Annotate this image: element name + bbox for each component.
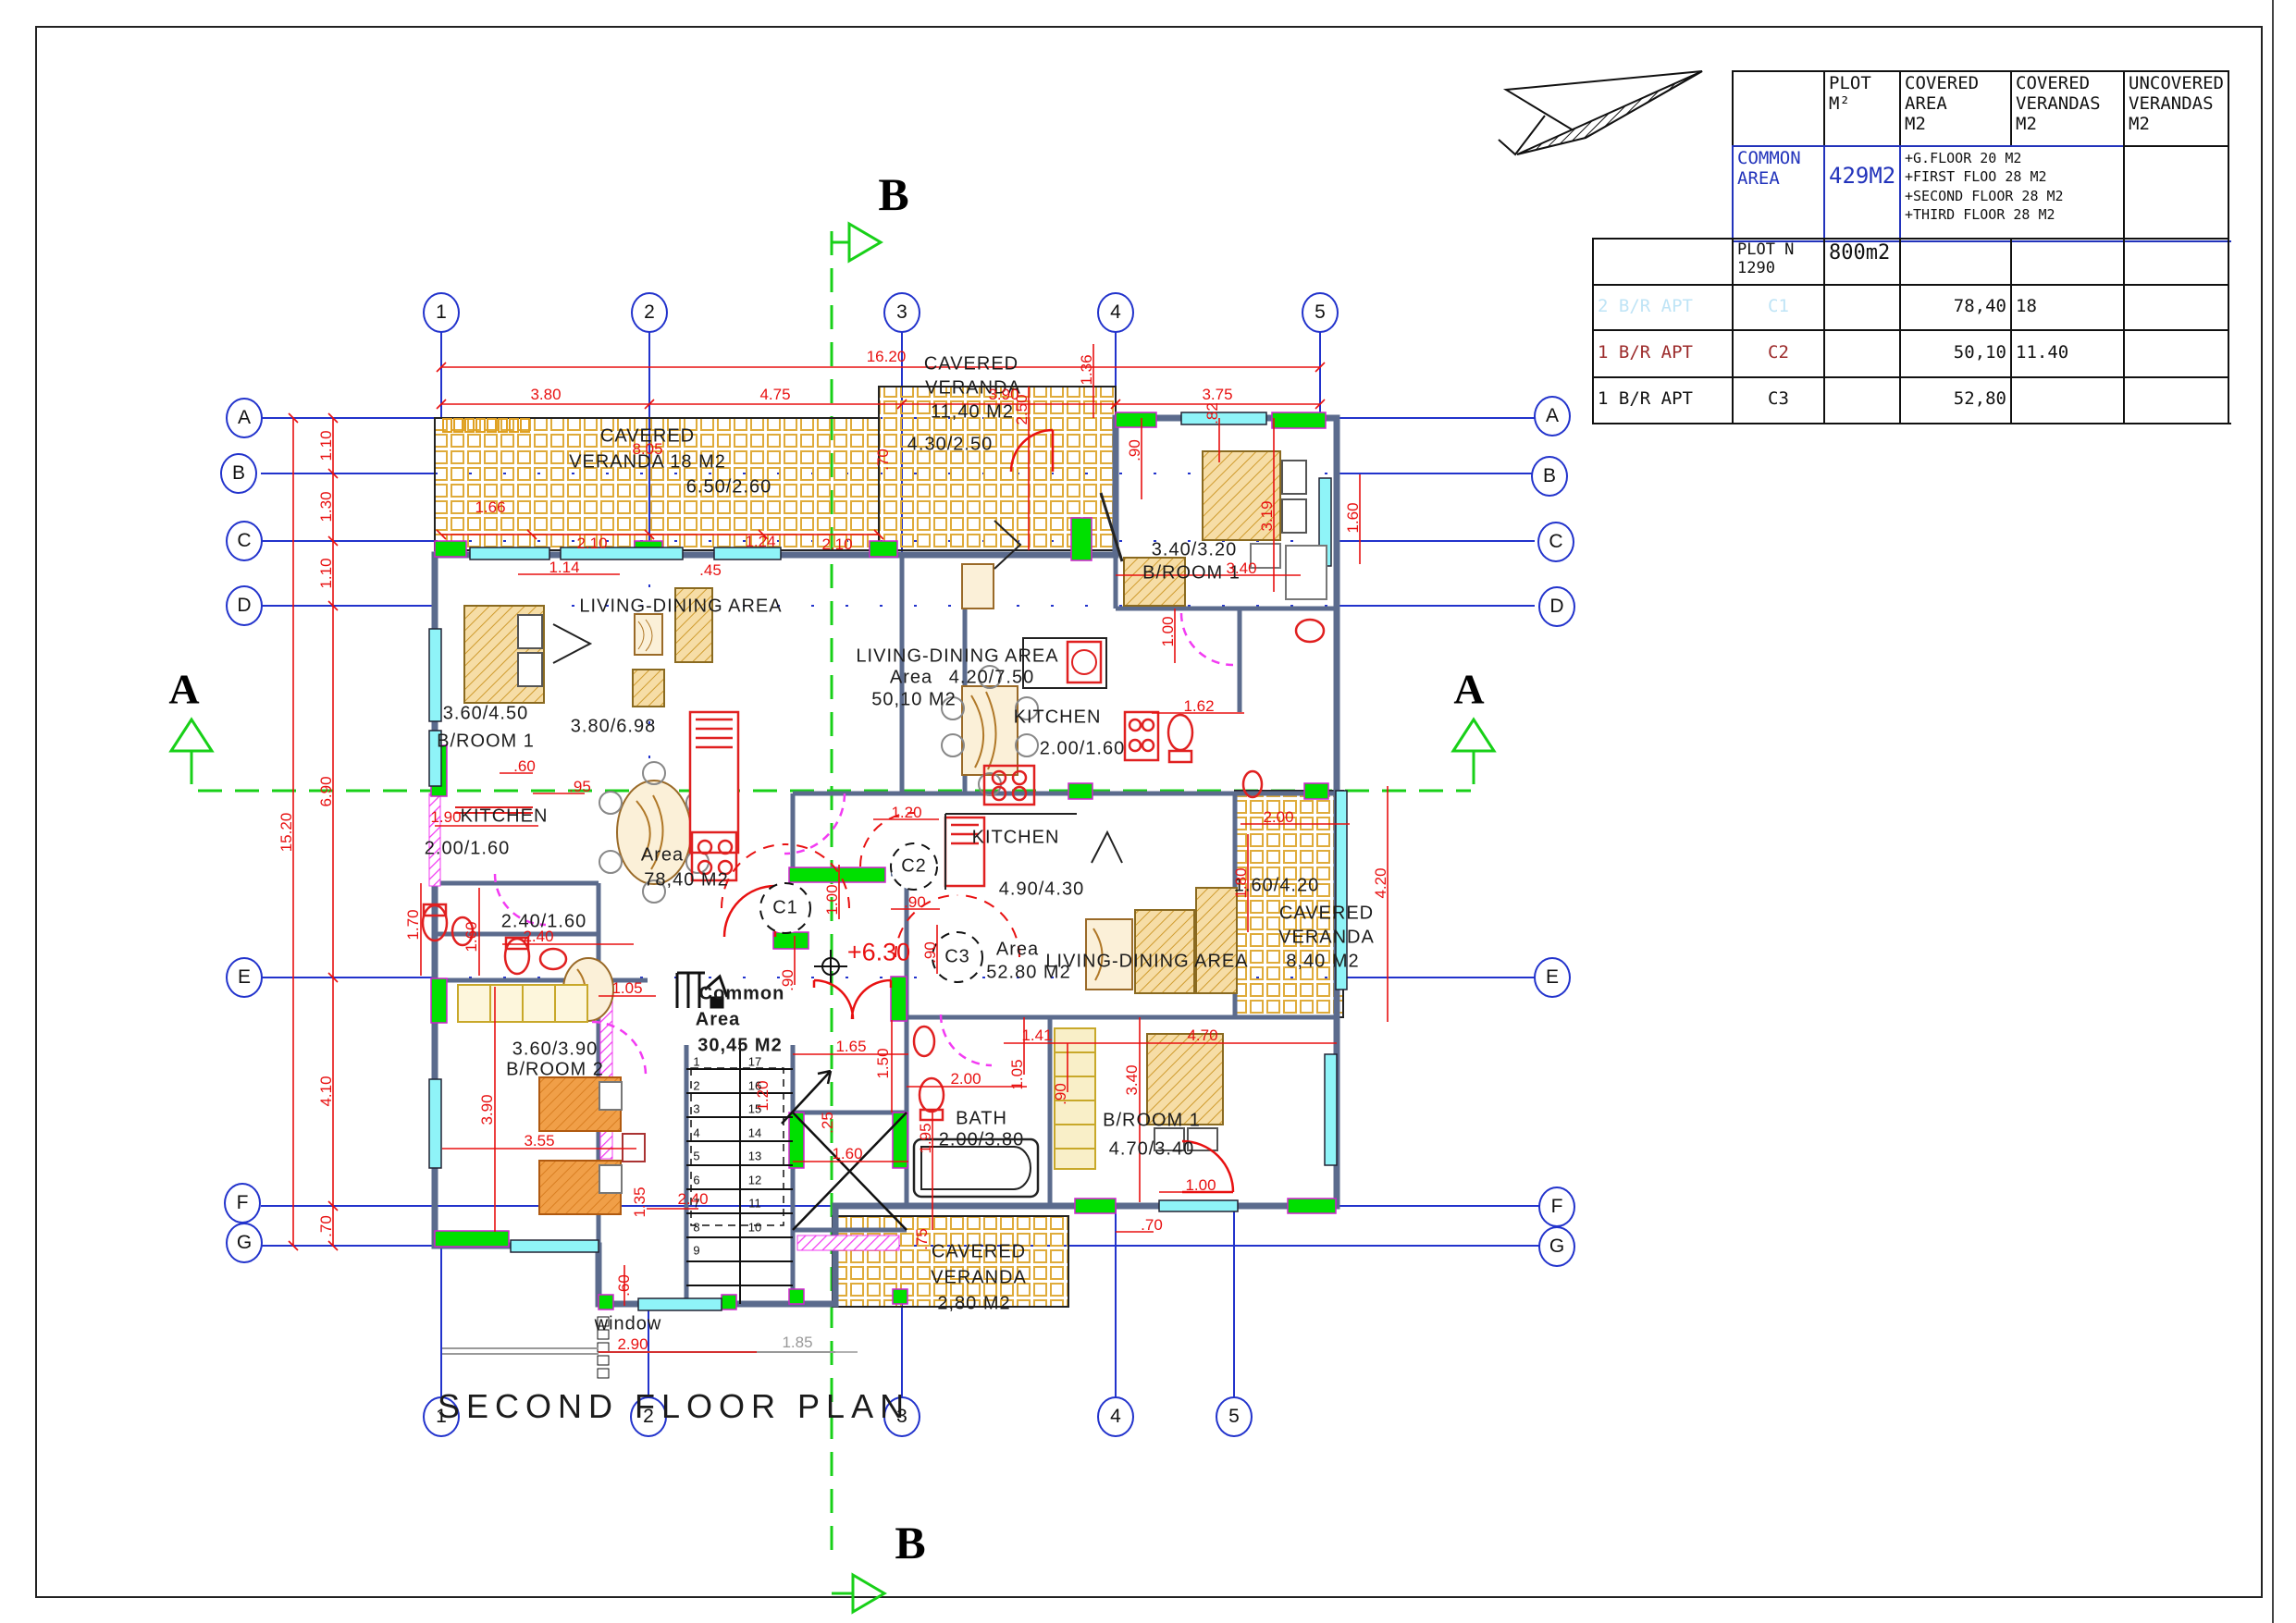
dimension-label: .90 (779, 969, 797, 991)
room-label: VERANDA (1278, 928, 1375, 949)
dimension-label: 1.00 (1185, 1176, 1216, 1195)
room-label: 11,40 M2 (931, 402, 1014, 424)
grid-bubble-right-E: E (1534, 957, 1571, 998)
room-label: Area (641, 845, 684, 867)
room-label: BATH (956, 1109, 1007, 1130)
room-label: KITCHEN (1014, 707, 1102, 729)
dimension-label: 4.75 (759, 386, 790, 404)
grid-bubble-top-3: 3 (883, 292, 920, 333)
apt-c3-verandas (2010, 376, 2123, 423)
apt-c1-covered: 78,40 (1899, 284, 2010, 329)
grid-bubble-top-4: 4 (1097, 292, 1134, 333)
dimension-label: 1.66 (475, 498, 505, 517)
grid-bubble-left-B: B (220, 453, 257, 494)
table-row-plot: PLOT N 1290 800m2 (1592, 238, 2231, 284)
grid-bubble-left-G: G (226, 1223, 263, 1263)
dimension-label: .25 (819, 1112, 837, 1134)
common-area-plot: 429M2 (1823, 145, 1899, 240)
stair-number: 11 (748, 1197, 761, 1211)
dimension-label: 1.41 (1021, 1027, 1052, 1045)
stair-number: 2 (693, 1078, 699, 1092)
dimension-label: 3.19 (1258, 500, 1277, 531)
room-label: 2.00/3.80 (939, 1130, 1024, 1151)
common-area-uncovered (2123, 145, 2229, 240)
room-label: 2.00/1.60 (1040, 739, 1125, 760)
apt-c2-verandas: 11.40 (2010, 329, 2123, 376)
grid-bubble-left-D: D (226, 585, 263, 626)
stair-number: 12 (748, 1173, 761, 1187)
stair-number: 6 (693, 1173, 699, 1187)
dimension-label: 3.55 (524, 1132, 554, 1150)
common-area-label: COMMON AREA (1732, 145, 1823, 240)
drawing-title: SECOND FLOOR PLAN (438, 1387, 910, 1426)
room-label: VERANDA (931, 1268, 1027, 1289)
dimension-label: 6.90 (317, 776, 336, 806)
dimension-label: .95 (569, 778, 591, 796)
plot-number: PLOT N 1290 (1732, 238, 1823, 284)
room-label: 50,10 M2 (871, 690, 956, 711)
dimension-label: 2.90 (617, 1335, 648, 1354)
section-marker: B (878, 167, 908, 221)
grid-bubble-right-F: F (1538, 1187, 1575, 1227)
stair-number: 5 (693, 1150, 699, 1163)
room-label: CAVERED (1279, 904, 1374, 925)
dimension-label: 4.20 (1372, 867, 1390, 898)
grid-bubble-left-C: C (226, 521, 263, 561)
room-label: B/ROOM 1 (1103, 1111, 1201, 1132)
dimension-label: 3.90 (478, 1094, 497, 1125)
dimension-label: 1.60 (1344, 502, 1363, 533)
stair-number: 8 (693, 1220, 699, 1234)
stair-number: 9 (693, 1244, 699, 1258)
dimension-label: 16.20 (867, 348, 907, 366)
dimension-label: 1.60 (463, 921, 481, 952)
table-header-blank (1732, 70, 1823, 145)
dimension-label: 2.50 (1013, 394, 1031, 424)
dimension-label: 3.75 (1202, 386, 1232, 404)
dimension-label: 1.05 (1008, 1059, 1027, 1089)
grid-bubble-left-F: F (224, 1183, 261, 1223)
table-row-c3: 1 B/R APT C3 52,80 (1592, 376, 2231, 424)
apt-c2-covered: 50,10 (1899, 329, 2010, 376)
dimension-label: 2.10 (576, 535, 607, 553)
room-label: 4.30/2.50 (907, 435, 993, 456)
dimension-label: .60 (615, 1274, 634, 1297)
dimension-label: 4.10 (317, 1076, 336, 1106)
dimension-label: 1.10 (317, 430, 336, 461)
stair-number: 1 (693, 1055, 699, 1069)
dimension-label: 1.20 (891, 804, 921, 822)
dimension-label: .45 (699, 561, 722, 580)
apt-c1-label: 2 B/R APT (1592, 284, 1732, 329)
grid-bubble-left-E: E (226, 957, 263, 998)
stair-number: 14 (748, 1125, 761, 1139)
stair-number: 7 (693, 1197, 699, 1211)
stair-number: 10 (748, 1220, 761, 1234)
stair-number: 4 (693, 1125, 699, 1139)
dimension-label: .60 (513, 757, 536, 776)
room-label: LIVING-DINING AREA (579, 596, 782, 618)
dimension-label: 2.00 (950, 1070, 981, 1088)
grid-bubble-right-G: G (1538, 1226, 1575, 1267)
dimension-label: 4.70 (1187, 1027, 1217, 1045)
dimension-label: .82 (1204, 402, 1222, 424)
room-label: CAVERED (932, 1242, 1026, 1263)
room-label: 30,45 M2 (697, 1036, 782, 1057)
dimension-label: 1.95 (917, 1123, 935, 1153)
room-label: Area (890, 668, 932, 689)
dimension-label: 1.70 (404, 909, 423, 940)
grid-bubble-top-5: 5 (1302, 292, 1339, 333)
room-label: B/ROOM 1 (437, 732, 535, 753)
dimension-label: 1.65 (835, 1038, 866, 1056)
apt-c2-label: 1 B/R APT (1592, 329, 1732, 376)
room-label: 3.80/6.98 (571, 717, 656, 738)
grid-bubble-bottom-4: 4 (1097, 1396, 1134, 1437)
dimension-label: 3.40 (1226, 559, 1256, 578)
dimension-label: 1.60 (832, 1145, 862, 1163)
grid-bubble-top-1: 1 (423, 292, 460, 333)
grid-bubble-top-2: 2 (631, 292, 668, 333)
dimension-label: 15.20 (278, 813, 296, 853)
dimension-label: 3.40 (1123, 1064, 1142, 1095)
dimension-label: 1.10 (317, 558, 336, 588)
dimension-label: .70 (317, 1215, 336, 1237)
dimension-label: 1.35 (631, 1187, 649, 1217)
dimension-label: 1.50 (874, 1048, 893, 1078)
room-label: LIVING-DINING AREA (1045, 952, 1248, 973)
area-summary-table: PLOT M² COVERED AREA M2 COVERED VERANDAS… (1732, 70, 2231, 242)
dimension-label: 1.36 (1078, 354, 1096, 385)
table-header-covered-area: COVERED AREA M2 (1899, 70, 2010, 145)
stair-number: 3 (693, 1102, 699, 1116)
table-header-covered-verandas: COVERED VERANDAS M2 (2010, 70, 2123, 145)
dimension-label: 1.80 (1232, 867, 1251, 898)
room-label: 3.60/4.50 (443, 704, 528, 725)
dimension-label: 8.05 (632, 440, 662, 459)
grid-bubble-right-C: C (1537, 522, 1574, 562)
apartment-circle-label: C3 (944, 947, 970, 968)
dimension-label: 1.85 (782, 1334, 812, 1352)
room-label: 8,40 M2 (1286, 952, 1359, 973)
room-label: 3.40/3.20 (1152, 540, 1237, 561)
apartment-circle-label: C2 (901, 856, 927, 878)
grid-bubble-left-A: A (226, 398, 263, 438)
room-label: KITCHEN (461, 806, 549, 828)
dimension-label: 2.10 (821, 535, 852, 554)
room-label: 4.20/7.50 (949, 668, 1034, 689)
grid-bubble-right-B: B (1531, 456, 1568, 497)
room-label: 3.60/3.90 (512, 1039, 598, 1061)
dimension-label: .90 (1126, 439, 1144, 461)
room-label: 4.70/3.40 (1109, 1139, 1194, 1161)
stair-number: 15 (748, 1102, 761, 1116)
room-label: 78,40 M2 (644, 870, 728, 891)
apt-c1-verandas: 18 (2010, 284, 2123, 329)
apartment-circle-label: C1 (772, 898, 798, 919)
dimension-label: +6.30 (847, 939, 910, 967)
drawing-sheet: PLOT M² COVERED AREA M2 COVERED VERANDAS… (0, 0, 2296, 1623)
dimension-label: 1.24 (745, 533, 775, 551)
room-label: KITCHEN (972, 828, 1060, 849)
room-label: Common (699, 984, 785, 1005)
table-row-c2: 1 B/R APT C2 50,10 11.40 (1592, 329, 2231, 376)
table-header-plot: PLOT M² (1823, 70, 1899, 145)
table-header-uncovered-verandas: UNCOVERED VERANDAS M2 (2123, 70, 2229, 145)
dimension-label: .70 (874, 449, 893, 471)
dimension-label: 1.14 (549, 559, 579, 577)
table-row-c1: 2 B/R APT C1 78,40 18 (1592, 284, 2231, 329)
stair-number: 13 (748, 1150, 761, 1163)
dimension-label: 1.30 (317, 491, 336, 522)
room-label: 2.00/1.60 (425, 839, 510, 860)
dimension-label: 3.80 (530, 386, 561, 404)
apt-c2-code: C2 (1732, 329, 1823, 376)
common-area-floors: +G.FLOOR 20 M2 +FIRST FLOO 28 M2 +SECOND… (1899, 145, 2123, 240)
section-marker: A (168, 665, 199, 714)
dimension-label: .90 (904, 893, 926, 912)
room-label: Area (996, 940, 1039, 961)
grid-bubble-bottom-5: 5 (1216, 1396, 1253, 1437)
room-label: CAVERED (924, 354, 1018, 375)
room-label: B/ROOM 2 (506, 1060, 604, 1081)
grid-bubble-right-A: A (1534, 396, 1571, 436)
apt-c3-covered: 52,80 (1899, 376, 2010, 423)
apt-c3-code: C3 (1732, 376, 1823, 423)
room-label: 6.50/2.60 (686, 477, 772, 498)
paper-plane-logo (1487, 51, 1728, 171)
plot-size: 800m2 (1823, 238, 1899, 284)
stair-number: 17 (748, 1055, 761, 1069)
dimension-label: .75 (913, 1228, 932, 1250)
dimension-label: 1.00 (823, 884, 842, 915)
dimension-label: 2.00 (1263, 808, 1293, 827)
room-label: window (595, 1314, 662, 1335)
room-label: 4.90/4.30 (999, 879, 1084, 901)
stair-number: 16 (748, 1078, 761, 1092)
dimension-label: 1.00 (1159, 616, 1178, 646)
room-label: 2,80 M2 (937, 1294, 1010, 1315)
apartments-table: PLOT N 1290 800m2 2 B/R APT C1 78,40 18 … (1592, 238, 2231, 424)
dimension-label: .70 (1141, 1216, 1163, 1235)
apt-c3-label: 1 B/R APT (1592, 376, 1732, 423)
dimension-label: .90 (1052, 1083, 1070, 1105)
apt-c1-code: C1 (1732, 284, 1823, 329)
room-label: Area (696, 1010, 740, 1031)
dimension-label: 1.05 (611, 979, 642, 998)
dimension-label: 1.90 (430, 808, 461, 827)
room-label: 52.80 M2 (986, 963, 1070, 984)
room-label: LIVING-DINING AREA (856, 646, 1058, 668)
dimension-label: 1.62 (1183, 697, 1214, 716)
dimension-label: 2.40 (523, 928, 553, 946)
section-marker: A (1453, 665, 1484, 714)
section-marker: B (895, 1516, 925, 1569)
dimension-label: .90 (921, 941, 940, 964)
grid-bubble-right-D: D (1538, 586, 1575, 627)
